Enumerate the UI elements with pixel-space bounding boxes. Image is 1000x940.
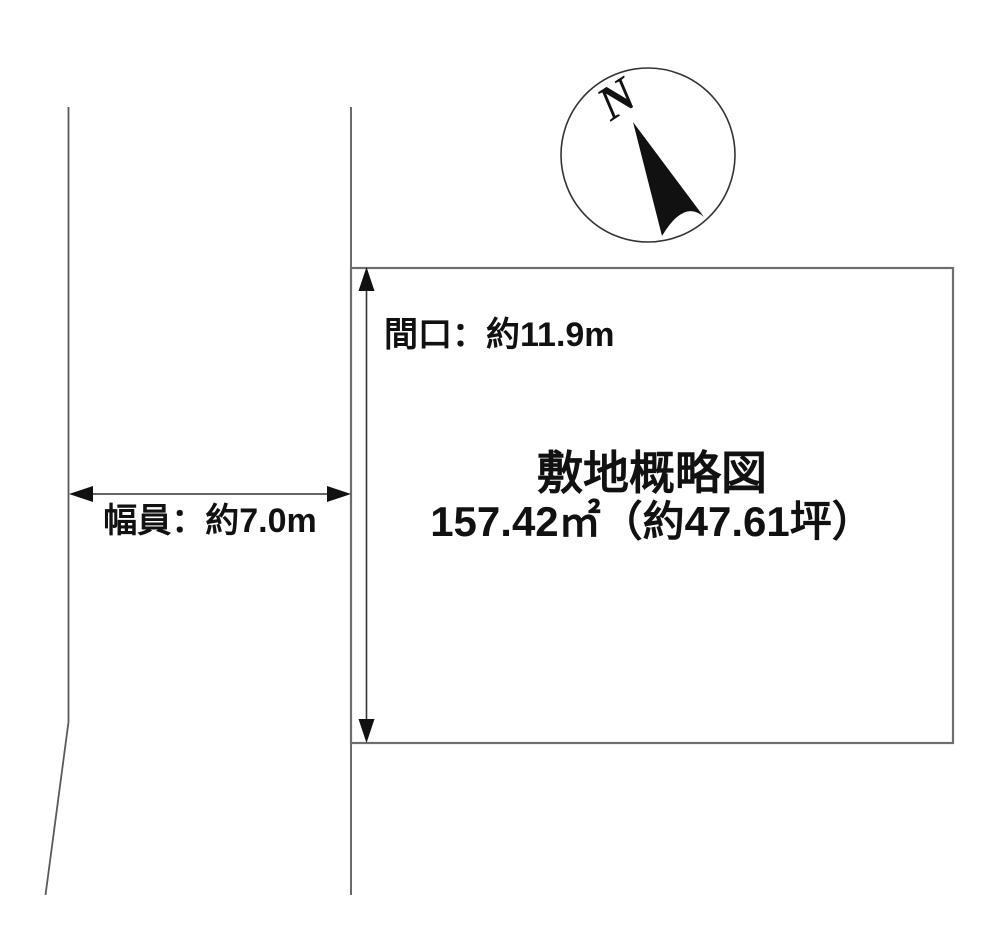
site-plan-drawing: N 間口：約11.9m 幅員：約7.0m 敷地概略図 157.42㎡（約47.6… <box>0 0 1000 940</box>
compass-needle-icon <box>633 122 704 236</box>
arrowhead-down-icon <box>359 719 375 743</box>
plot-text-block: 敷地概略図 157.42㎡（約47.61坪） <box>351 450 953 544</box>
road-width-label: 幅員：約7.0m <box>103 502 317 540</box>
compass-north-label: N <box>587 66 648 131</box>
road-width-dimension-arrow <box>69 486 351 502</box>
plot-area-value: 157.42㎡（約47.61坪） <box>351 500 953 544</box>
frontage-label: 間口：約11.9m <box>384 318 615 352</box>
compass: N <box>561 66 735 242</box>
arrowhead-left-icon <box>69 486 93 502</box>
road-width-label-wrap: 幅員：約7.0m <box>68 504 352 538</box>
road-left-edge-line <box>46 107 69 895</box>
plot-title: 敷地概略図 <box>351 450 953 497</box>
arrowhead-up-icon <box>359 267 375 291</box>
arrowhead-right-icon <box>327 486 351 502</box>
